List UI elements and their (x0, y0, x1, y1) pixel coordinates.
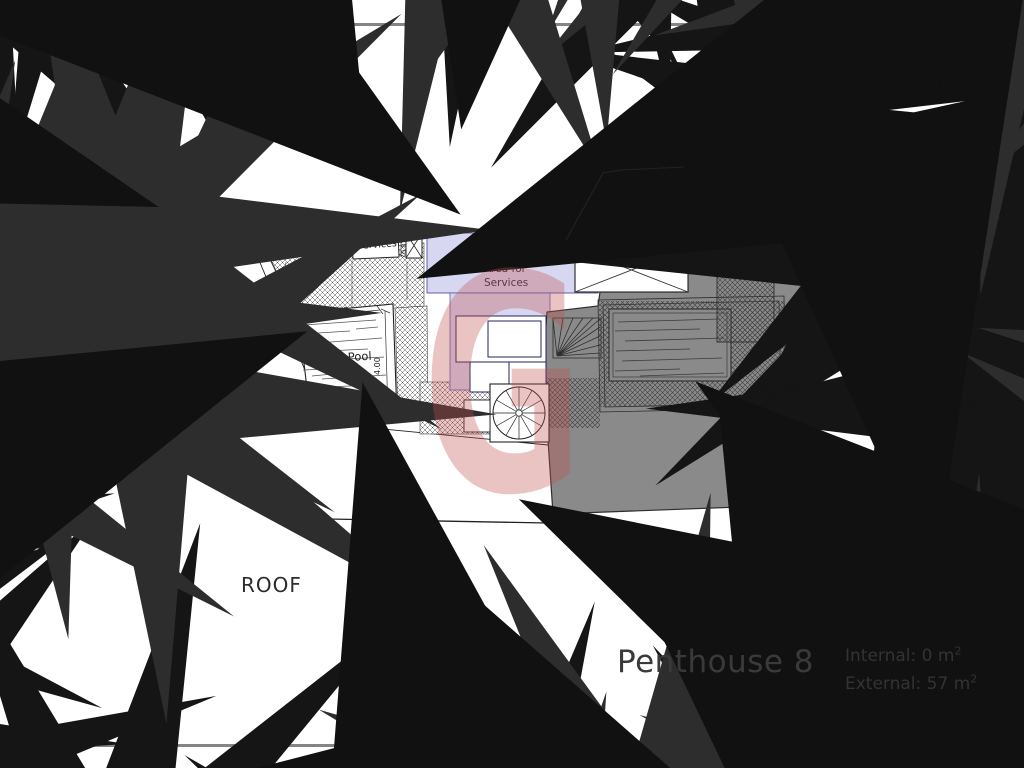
floor-name-label: ROOF (241, 573, 302, 597)
internal-area-text: Internal: 0 m (845, 646, 954, 666)
area-summary: Internal: 0 m2 External: 57 m2 (845, 642, 977, 698)
unit-title: Penthouse 8 (617, 644, 814, 680)
watermark-logo: G (422, 211, 585, 560)
external-area-sup: 2 (970, 672, 977, 685)
external-area: External: 57 m2 (845, 670, 977, 698)
internal-area: Internal: 0 m2 (845, 642, 977, 670)
external-area-text: External: 57 m (845, 674, 970, 694)
internal-area-sup: 2 (954, 644, 961, 657)
dim-pool-length: 4.00 (373, 357, 382, 375)
callout-text: Area for Services (622, 158, 690, 167)
neighbor-pool (609, 309, 731, 381)
